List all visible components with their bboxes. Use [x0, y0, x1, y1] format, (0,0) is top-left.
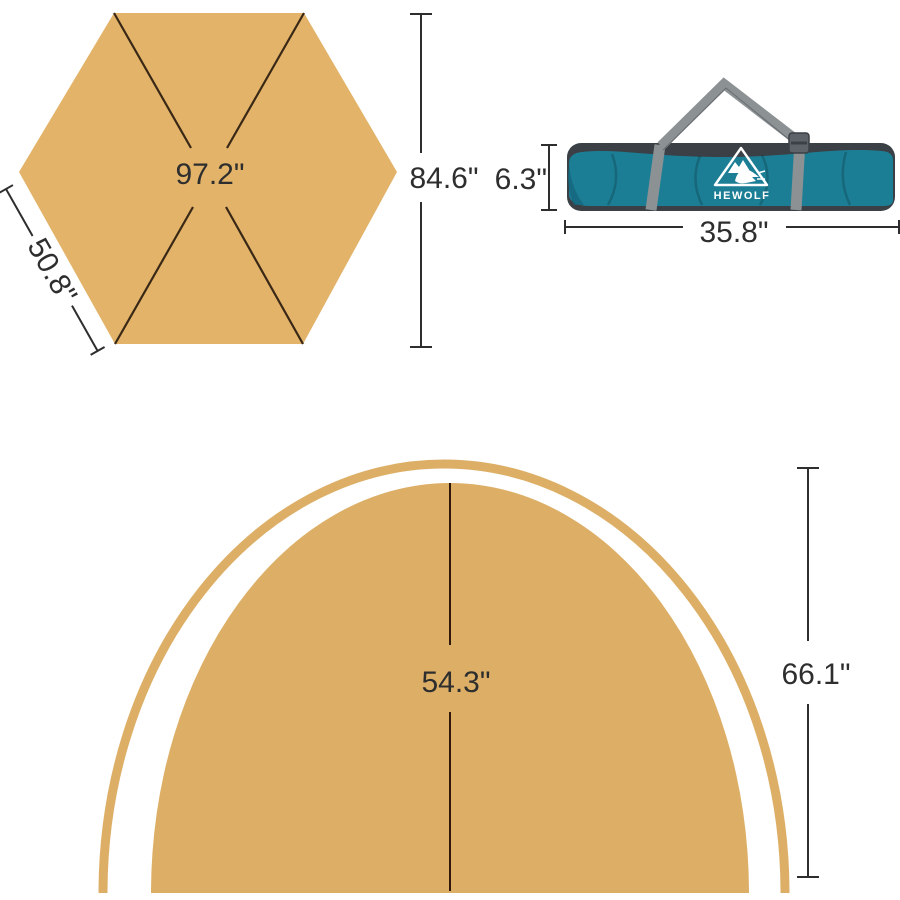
bag-width-label: 35.8"	[699, 216, 768, 249]
dimensions-canvas: 97.2" 84.6" 50.8"	[0, 0, 900, 900]
bag-strap-handle	[661, 84, 798, 146]
hexagon-height-label: 84.6"	[409, 162, 478, 195]
product-dimension-diagram: 97.2" 84.6" 50.8"	[0, 0, 900, 900]
dome-height-label: 66.1"	[781, 658, 850, 691]
brand-name: HEWOLF	[714, 190, 771, 202]
bag-figure: HEWOLF 6.3" 35.8"	[495, 84, 899, 249]
bag-height-label: 6.3"	[495, 163, 547, 196]
dome-radius-label: 54.3"	[421, 666, 490, 699]
hexagon-width-label: 97.2"	[175, 158, 244, 191]
hexagon-figure: 97.2" 84.6" 50.8"	[0, 13, 479, 359]
dome-figure: 54.3" 66.1"	[103, 464, 851, 893]
